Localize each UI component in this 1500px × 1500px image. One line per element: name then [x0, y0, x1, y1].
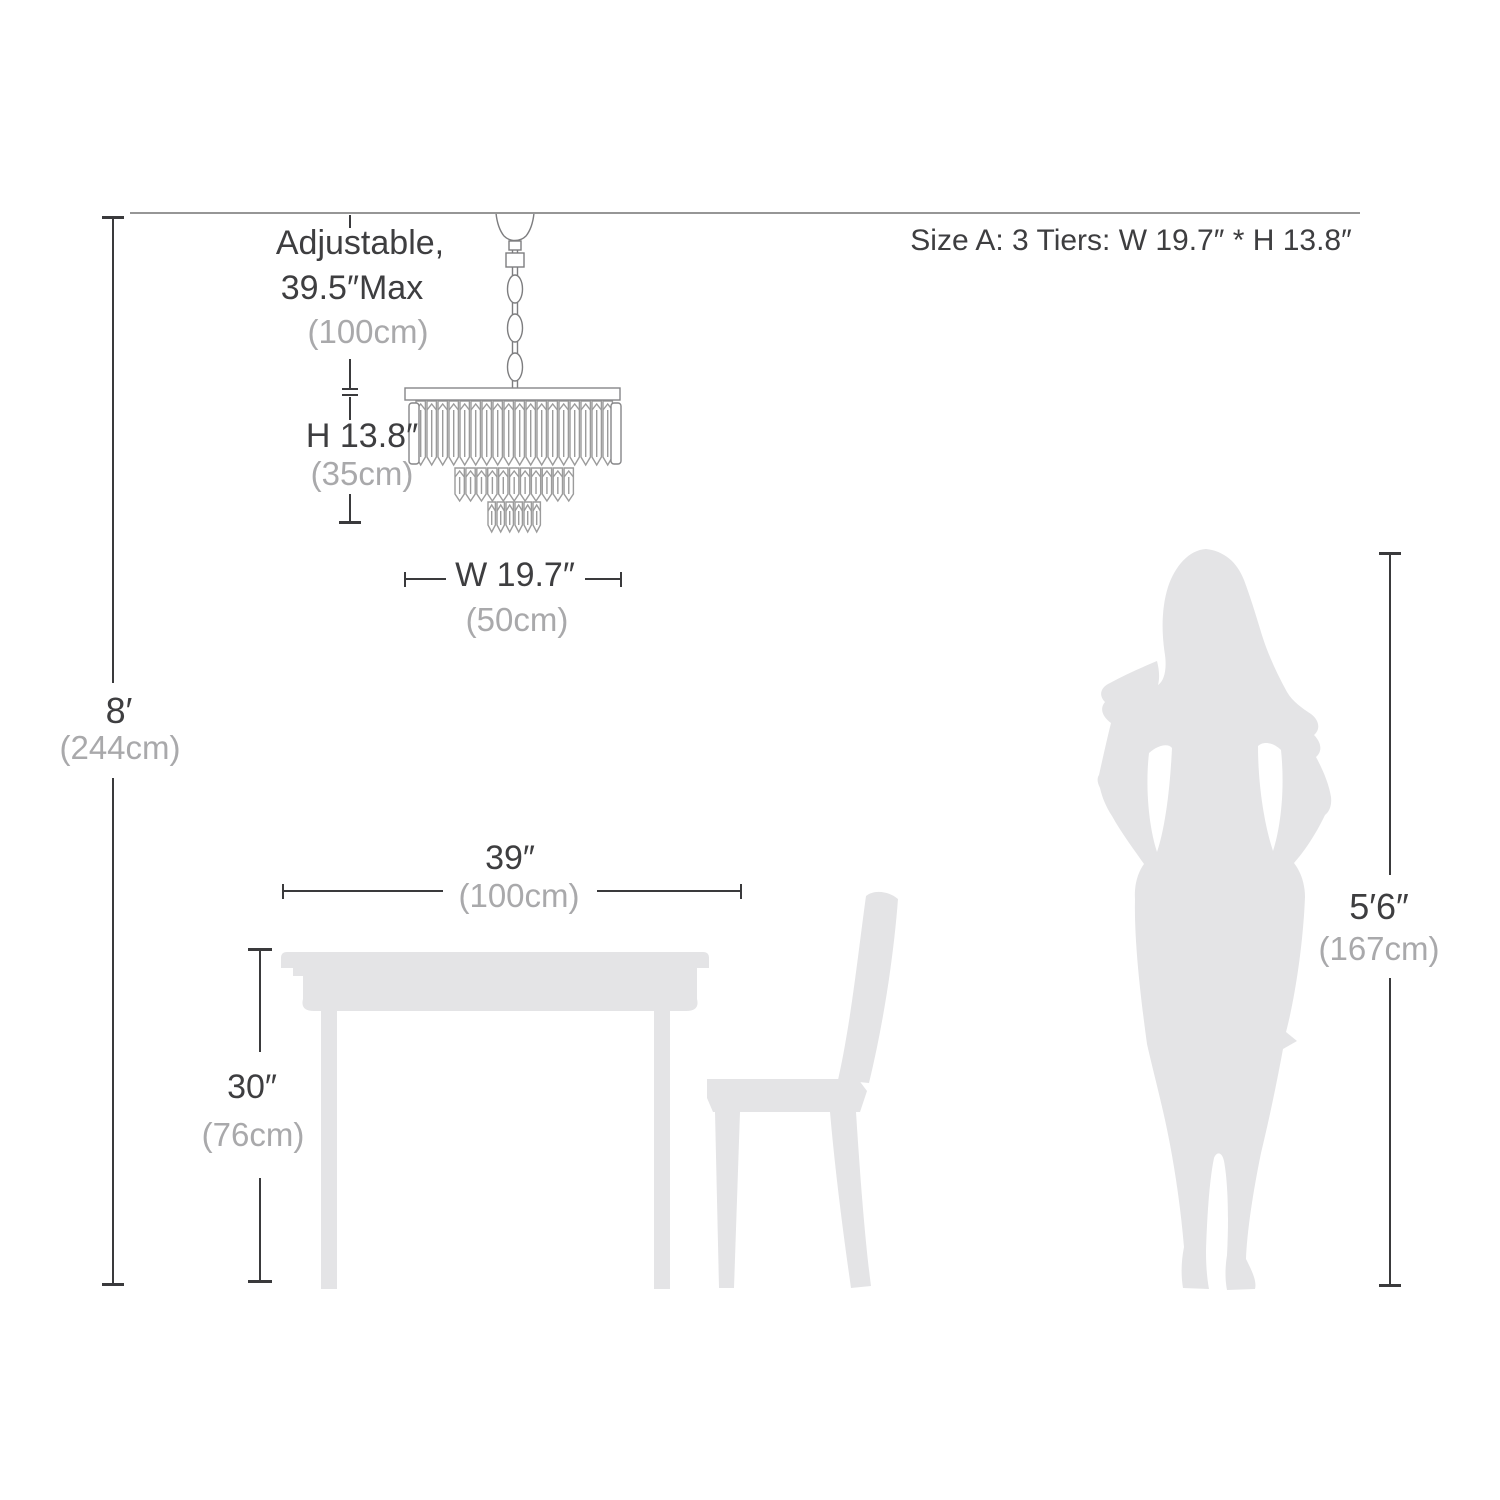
ceiling-line [130, 212, 1360, 214]
dimension-segment [405, 578, 446, 580]
dimension-segment [349, 494, 351, 523]
dimension-end-tick [248, 1280, 272, 1283]
person-height-metric: (167cm) [1318, 930, 1439, 968]
dimension-break-mark [342, 388, 358, 390]
dimension-segment [597, 890, 741, 892]
size-variant-label: Size A: 3 Tiers: W 19.7″ * H 13.8″ [910, 224, 1351, 259]
dimension-segment [259, 951, 261, 1052]
dimension-break-mark [342, 394, 358, 396]
chandelier-canopy [496, 213, 534, 250]
dimension-end-tick [339, 521, 361, 524]
dimension-segment [283, 890, 443, 892]
ceiling-height-label: 8′ [106, 690, 133, 731]
fixture-height-metric: (35cm) [311, 455, 414, 493]
fixture-height-label: H 13.8″ [306, 417, 418, 456]
ceiling-height-metric: (244cm) [59, 729, 180, 767]
dimension-segment [1389, 555, 1391, 875]
dimension-end-tick [620, 572, 622, 587]
dimension-diagram: Size A: 3 Tiers: W 19.7″ * H 13.8″ Adjus… [0, 0, 1500, 1500]
dimension-segment [112, 778, 114, 1285]
table-width-metric: (100cm) [458, 877, 579, 915]
dimension-end-tick [1379, 1284, 1401, 1287]
chain-length-label-line2: 39.5″Max [281, 269, 423, 308]
person-height-label: 5′6″ [1349, 886, 1409, 927]
table-height-label: 30″ [227, 1068, 277, 1107]
chain-length-label-line1: Adjustable, [276, 224, 444, 263]
chair-silhouette [707, 892, 898, 1288]
dimension-segment [349, 359, 351, 390]
table-width-label: 39″ [485, 839, 535, 878]
dimension-segment [1389, 978, 1391, 1286]
chandelier-crystal-tiers [416, 401, 612, 532]
fixture-width-label: W 19.7″ [455, 556, 575, 595]
dimension-segment [585, 578, 621, 580]
table-height-metric: (76cm) [202, 1116, 305, 1154]
table-silhouette [281, 952, 709, 1289]
fixture-width-metric: (50cm) [466, 601, 569, 639]
dimension-end-tick [740, 884, 742, 899]
chandelier-chain [506, 250, 524, 389]
dimension-segment [259, 1178, 261, 1282]
dimension-segment [112, 219, 114, 683]
chain-length-metric: (100cm) [307, 313, 428, 351]
woman-silhouette [1098, 549, 1332, 1290]
dimension-end-tick [102, 1283, 124, 1286]
